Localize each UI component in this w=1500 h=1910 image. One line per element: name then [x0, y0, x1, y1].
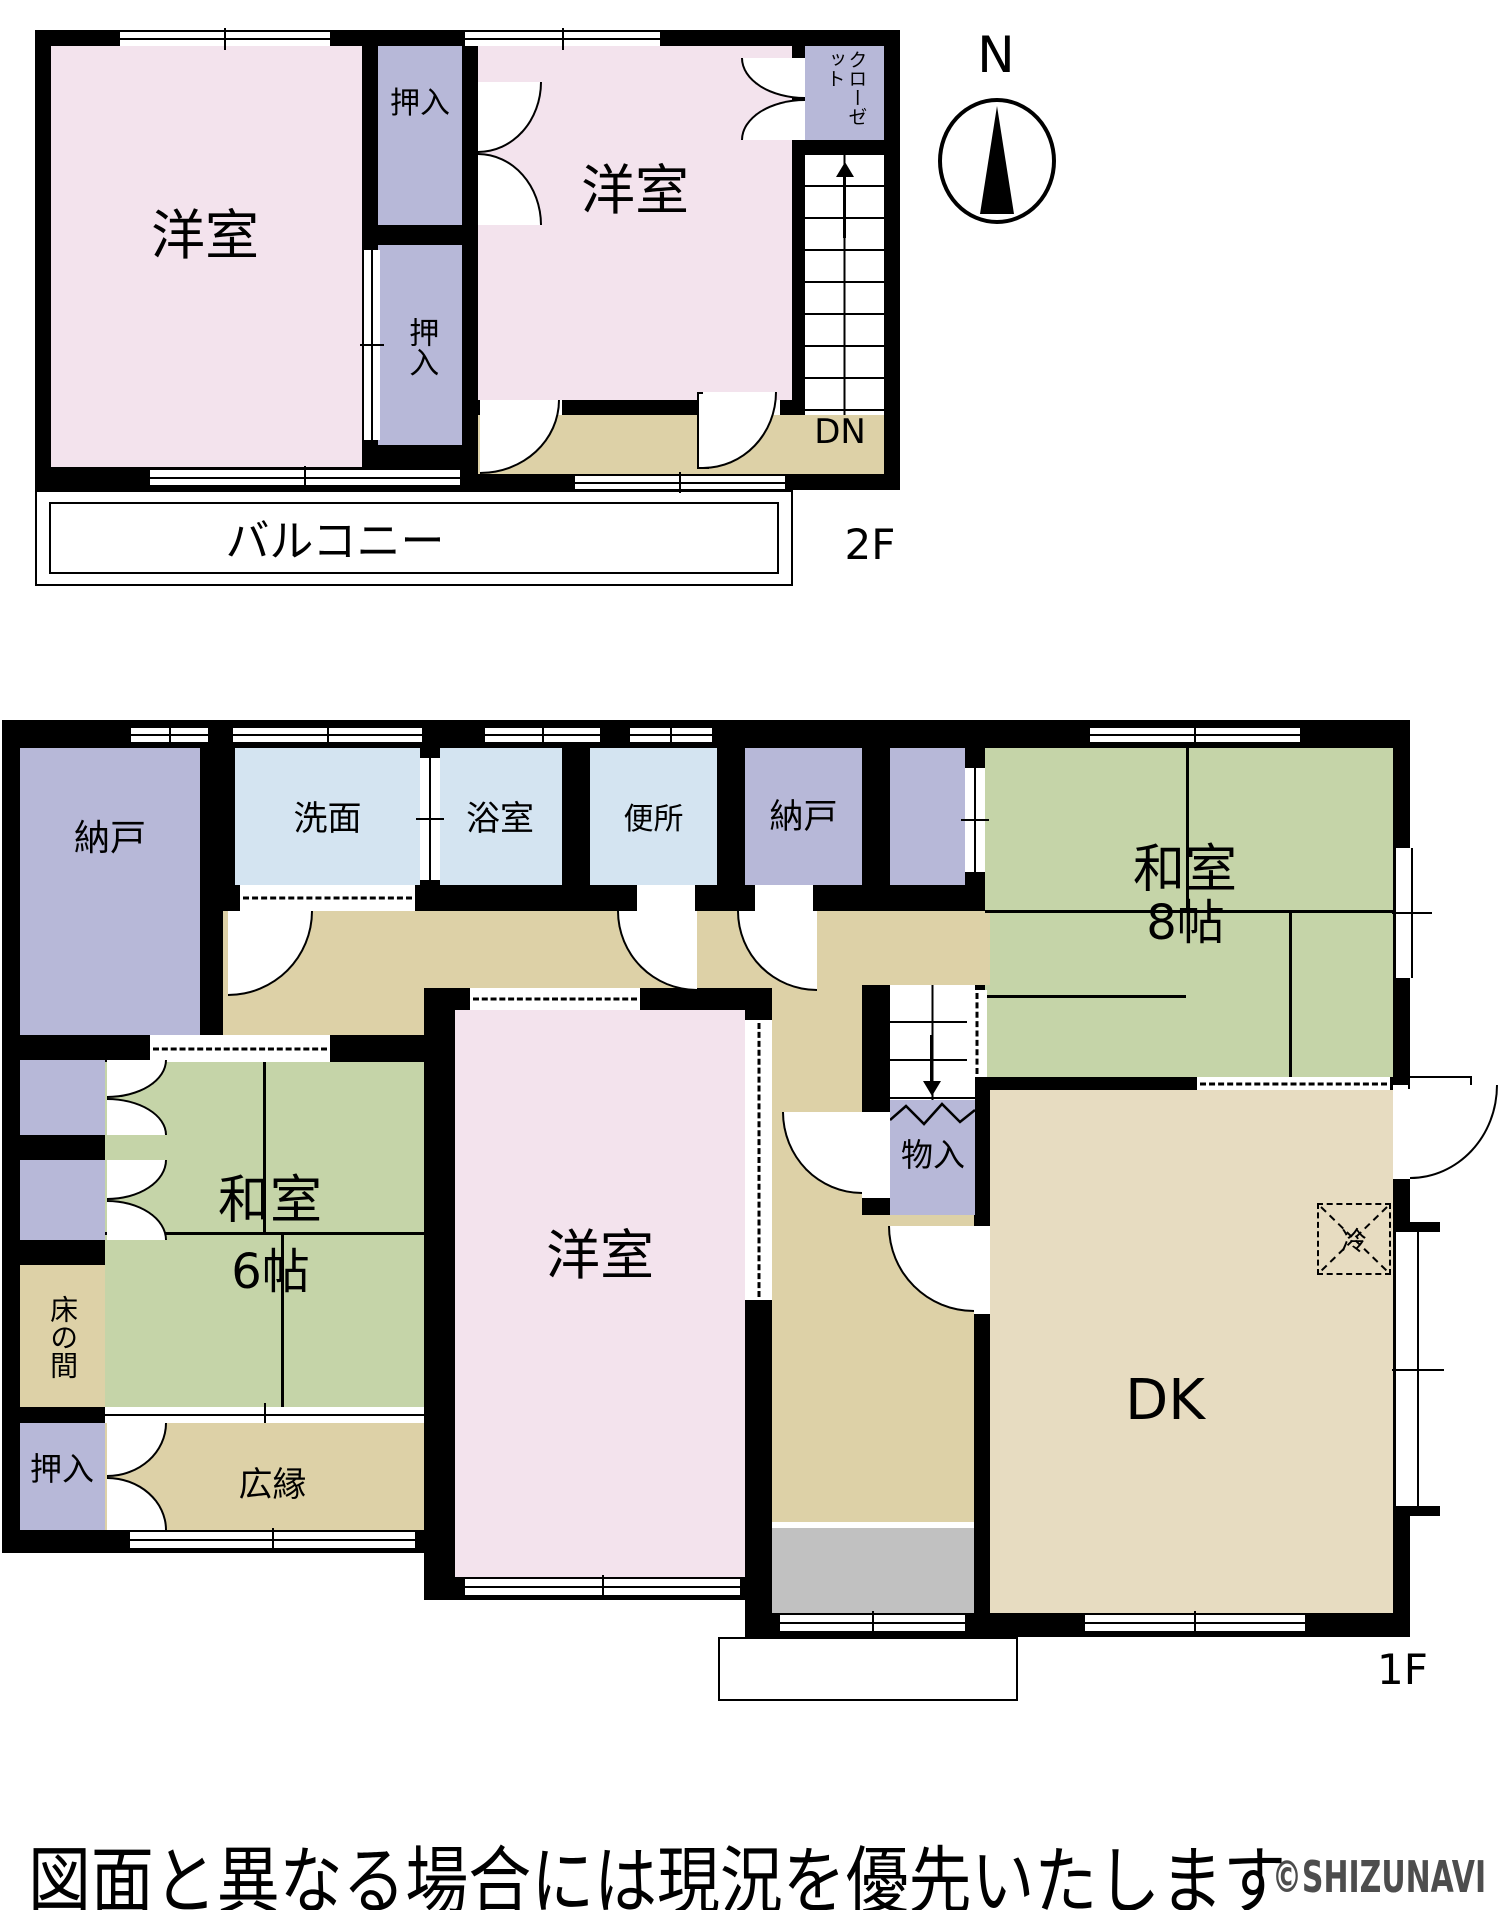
- 1f-washitsu6-slider: [150, 1035, 330, 1062]
- 1f-corridor-e: [862, 911, 990, 985]
- 1f-washitsu6-label: 和室: [190, 1165, 350, 1225]
- door-gap: [755, 885, 813, 913]
- 1f-western-room: [455, 1010, 745, 1577]
- 2f-window-bottom-left: [150, 470, 460, 485]
- 1f-hiroen-slider: [105, 1407, 424, 1423]
- door-gap: [862, 1112, 890, 1198]
- watermark: ©SHIZUNAVI: [1272, 1852, 1486, 1903]
- bay-window-cap: [1396, 1222, 1440, 1232]
- 1f-closet-a: [20, 1060, 105, 1135]
- 1f-bay-window-dk: [1396, 1232, 1440, 1508]
- 1f-window-hiroen: [130, 1532, 415, 1548]
- balcony-label: バルコニー: [190, 508, 480, 566]
- 1f-yoshitsu-top-slider: [470, 988, 640, 1010]
- tatami-line: [985, 995, 1186, 998]
- 1f-western-room-label: 洋室: [475, 1210, 725, 1290]
- 1f-genkan: [772, 1528, 974, 1613]
- compass-icon: [936, 96, 1058, 226]
- 1f-benjo-label: 便所: [592, 792, 715, 840]
- 1f-closet-top-slider: [965, 768, 985, 872]
- 2f-closet-label: クローゼット: [807, 50, 882, 138]
- 1f-yokushitsu-label: 浴室: [435, 788, 565, 842]
- disclaimer-text: 図面と異なる場合には現況を優先いたします: [28, 1822, 1286, 1910]
- 1f-oshiire-label: 押入: [14, 1443, 110, 1491]
- door-gap: [974, 1226, 990, 1314]
- 1f-nando-left-label: 納戸: [20, 808, 200, 862]
- 1f-window-yoshitsu: [465, 1579, 740, 1595]
- 1f-window-washitsu8: [1090, 728, 1300, 742]
- 1f-washitsu8-size-label: 8帖: [1118, 890, 1253, 945]
- 1f-window-senmen: [233, 728, 422, 742]
- 1f-tokonoma-label: 床の間: [24, 1270, 100, 1404]
- door-gap: [1393, 1085, 1410, 1179]
- refrigerator-box: 冷: [1317, 1203, 1391, 1275]
- 1f-closet-top: [890, 748, 965, 885]
- 1f-porch-outline: [718, 1637, 1018, 1701]
- 1f-washitsu8-dk-slider: [1197, 1077, 1390, 1090]
- 2f-window-top-right: [465, 32, 660, 46]
- 2f-room-label: 洋室: [80, 190, 330, 270]
- 1f-monoire-zigzag: [890, 1100, 975, 1130]
- 1f-window-dk-south: [1085, 1615, 1305, 1631]
- tatami-line: [1289, 913, 1292, 1077]
- 2f-room-label: 洋室: [510, 145, 760, 225]
- 1f-hiroen-label: 広縁: [190, 1455, 355, 1507]
- 1f-nando-left: [20, 748, 200, 1035]
- bay-window-cap: [1396, 1506, 1440, 1516]
- 1f-yoshitsu-east-slider: [745, 1020, 772, 1300]
- refrigerator-label: 冷: [1319, 1205, 1389, 1273]
- 1f-senmen-label: 洗面: [245, 788, 410, 842]
- 1f-dk: [990, 1090, 1393, 1613]
- 2f-oshiire-label: 押入: [378, 78, 462, 122]
- 1f-dk-label: DK: [1090, 1368, 1240, 1432]
- floor-plan-canvas: 洋室 洋室 押入 押入 クローゼット DN バルコニー 2F N: [0, 0, 1500, 1910]
- 2f-oshiire-slider: [364, 250, 380, 440]
- 2f-window-top-left: [120, 32, 330, 46]
- 1f-washitsu6-size-label: 6帖: [198, 1238, 343, 1296]
- 2f-dn-label: DN: [800, 408, 880, 456]
- 2f-floor-label: 2F: [826, 518, 914, 570]
- 1f-window-benjo: [630, 728, 712, 742]
- 1f-entrance-door: [780, 1615, 965, 1631]
- 2f-stairs-up-arrow: [836, 162, 854, 242]
- 2f-oshiire-label: 押入: [396, 272, 444, 422]
- 1f-monoire-label: 物入: [888, 1128, 978, 1178]
- 1f-washitsu8-west-slider: [967, 990, 987, 1077]
- compass-north-label: N: [966, 24, 1026, 86]
- 1f-east-door: [1410, 1085, 1498, 1179]
- 1f-window-yoku: [485, 728, 600, 742]
- 2f-oshiire-top: [378, 46, 462, 225]
- door-gap: [637, 885, 695, 913]
- 1f-stairs-down-arrow: [923, 1035, 941, 1097]
- 1f-nando-top-label: 納戸: [745, 786, 862, 840]
- 1f-window-nando: [131, 728, 208, 742]
- 1f-closet-b: [20, 1160, 105, 1240]
- 2f-window-hall: [575, 476, 785, 489]
- 1f-senmen-slider: [240, 885, 415, 911]
- 1f-window-washitsu8-east: [1396, 848, 1428, 978]
- 1f-floor-label: 1F: [1355, 1642, 1450, 1696]
